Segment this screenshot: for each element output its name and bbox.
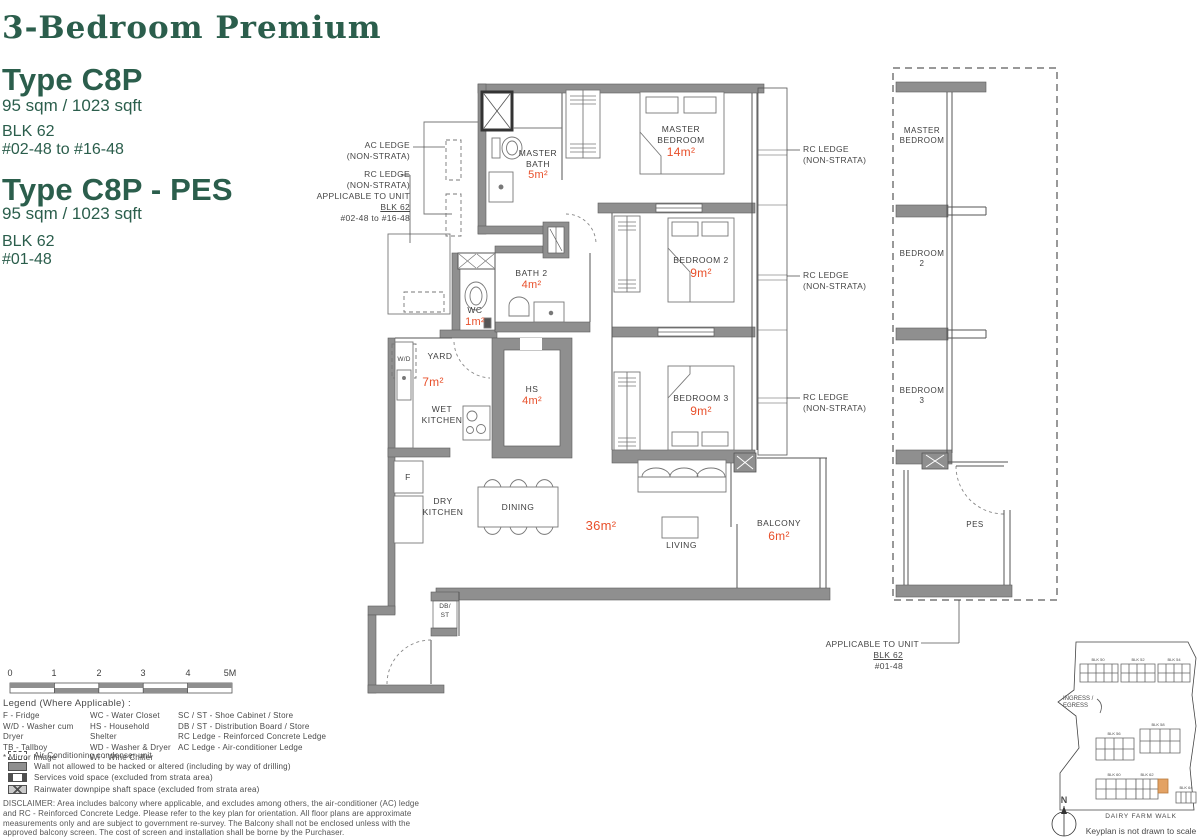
north-arrow-icon: [1052, 806, 1076, 836]
room-area: 5m²: [508, 169, 568, 183]
legend-heading: Legend (Where Applicable) :: [3, 698, 131, 709]
keyplan-blk-52: BLK 52: [1122, 657, 1154, 662]
floorplan-page: 3-Bedroom Premium Type C8P 95 sqm / 1023…: [0, 0, 1200, 838]
keyplan-blk-50: BLK 50: [1082, 657, 1114, 662]
keyplan-highlighted-unit: [1158, 779, 1168, 793]
room-area: 9m²: [656, 404, 746, 419]
room-name: WET KITCHEN: [422, 404, 463, 425]
room-label-bedroom3: BEDROOM 3 9m²: [656, 393, 746, 419]
room-name: W/D: [397, 356, 410, 363]
scale-label-5m: 5M: [216, 668, 244, 678]
services-void-symbol: [8, 773, 27, 782]
room-name: F: [405, 472, 411, 482]
room-label-hs: HS 4m²: [510, 384, 554, 408]
pes-panel-pes: PES: [950, 520, 1000, 530]
type-c8p-heading: Type C8P: [2, 62, 143, 98]
room-name: DB/: [433, 603, 457, 612]
living-area-value: 36m²: [578, 518, 624, 533]
type-c8p-pes-units: #01-48: [2, 251, 52, 269]
room-label-balcony: BALCONY 6m²: [748, 518, 810, 544]
legend-symbol-void: Services void space (excluded from strat…: [8, 773, 213, 782]
room-name: DINING: [502, 502, 535, 512]
type-c8p-area: 95 sqm / 1023 sqft: [2, 96, 142, 116]
room-label-bath2: BATH 2 4m²: [494, 268, 569, 292]
room-area: 1m²: [454, 316, 496, 330]
room-name: MASTER BATH: [519, 148, 557, 169]
pes-applicable-callout: APPLICABLE TO UNIT BLK 62 #01-48: [812, 639, 919, 672]
scale-label-4: 4: [178, 668, 198, 678]
page-title: 3-Bedroom Premium: [2, 10, 382, 46]
disclaimer-text: DISCLAIMER: Area includes balcony where …: [3, 799, 431, 838]
keyplan-blk-60: BLK 60: [1098, 772, 1130, 777]
pes-panel-bedroom2: BEDROOM 2: [896, 249, 948, 269]
room-name: YARD: [428, 351, 453, 361]
room-name: LIVING: [666, 540, 697, 550]
keyplan-note: Keyplan is not drawn to scale: [1084, 826, 1198, 836]
scale-label-1: 1: [44, 668, 64, 678]
dbst-label: DB/ ST: [433, 603, 457, 621]
keyplan-ingress-label: INGRESS / EGRESS: [1063, 696, 1107, 710]
fridge-label: F: [395, 472, 421, 483]
room-name: MASTER BEDROOM: [657, 124, 704, 145]
ac-ledge-callout: AC LEDGE (NON-STRATA): [328, 140, 410, 162]
room-area: 4m²: [494, 279, 569, 293]
room-area: 6m²: [748, 529, 810, 544]
legend-column-3: SC / ST - Shoe Cabinet / Store DB / ST -…: [178, 711, 330, 753]
type-c8p-pes-blk: BLK 62: [2, 233, 54, 251]
scale-bar: [10, 683, 232, 693]
north-label: N: [1057, 795, 1071, 805]
pes-panel-bedroom3: BEDROOM 3: [896, 386, 948, 406]
scale-label-0: 0: [0, 668, 20, 678]
room-name: HS: [526, 384, 539, 394]
room-label-dining: DINING: [488, 502, 548, 513]
wd-label: W/D: [392, 356, 416, 364]
keyplan-blk-54: BLK 54: [1158, 657, 1190, 662]
room-name: BATH 2: [515, 268, 547, 278]
room-label-dry-kitchen: DRY KITCHEN: [418, 496, 468, 517]
wall-symbol: [8, 762, 27, 771]
keyplan-blk-56: BLK 56: [1098, 731, 1130, 736]
keyplan-blk-58: BLK 58: [1142, 722, 1174, 727]
room-area: 14m²: [650, 145, 712, 160]
room-name: WC: [467, 305, 482, 315]
type-c8p-pes-area: 95 sqm / 1023 sqft: [2, 204, 142, 224]
room-label-wc: WC 1m²: [454, 305, 496, 329]
legend-symbol-ac: Air-Conditioning condenser unit: [8, 751, 152, 760]
room-area: 4m²: [510, 395, 554, 409]
pes-panel-master-bedroom: MASTER BEDROOM: [896, 126, 948, 146]
room-label-yard: YARD: [417, 351, 463, 362]
keyplan-blk-64: BLK 64: [1170, 785, 1200, 790]
room-label-master-bedroom: MASTER BEDROOM 14m²: [650, 124, 712, 160]
room-name: BEDROOM 3: [673, 393, 729, 403]
room-label-living: LIVING: [654, 540, 709, 551]
ac-condenser-symbol: [8, 751, 27, 760]
type-c8p-units: #02-48 to #16-48: [2, 141, 124, 159]
rc-ledge-right-callout-2: RC LEDGE (NON-STRATA): [803, 270, 893, 292]
keyplan-map: [1052, 642, 1196, 836]
legend-symbol-rainwater: Rainwater downpipe shaft space (excluded…: [8, 785, 260, 794]
room-label-wet-kitchen: WET KITCHEN: [418, 404, 466, 425]
room-label-master-bath: MASTER BATH 5m²: [508, 148, 568, 183]
rc-ledge-right-callout-3: RC LEDGE (NON-STRATA): [803, 392, 893, 414]
type-c8p-blk: BLK 62: [2, 123, 54, 141]
room-label-bedroom2: BEDROOM 2 9m²: [656, 255, 746, 281]
room-name: BEDROOM 2: [673, 255, 729, 265]
scale-label-3: 3: [133, 668, 153, 678]
room-area: 9m²: [656, 266, 746, 281]
keyplan-blk-62: BLK 62: [1131, 772, 1163, 777]
rainwater-symbol: [8, 785, 27, 794]
yard-area-value: 7m²: [410, 375, 456, 389]
room-name: BALCONY: [757, 518, 801, 528]
type-c8p-pes-heading: Type C8P - PES: [2, 172, 233, 208]
room-name: DRY KITCHEN: [423, 496, 464, 517]
rc-ledge-right-callout-1: RC LEDGE (NON-STRATA): [803, 144, 893, 166]
rc-ledge-left-callout: RC LEDGE (NON-STRATA) APPLICABLE TO UNIT…: [316, 169, 410, 224]
legend-symbol-wall: Wall not allowed to be hacked or altered…: [8, 762, 291, 771]
scale-label-2: 2: [89, 668, 109, 678]
keyplan-road-label: DAIRY FARM WALK: [1098, 813, 1184, 820]
room-name: ST: [433, 612, 457, 621]
